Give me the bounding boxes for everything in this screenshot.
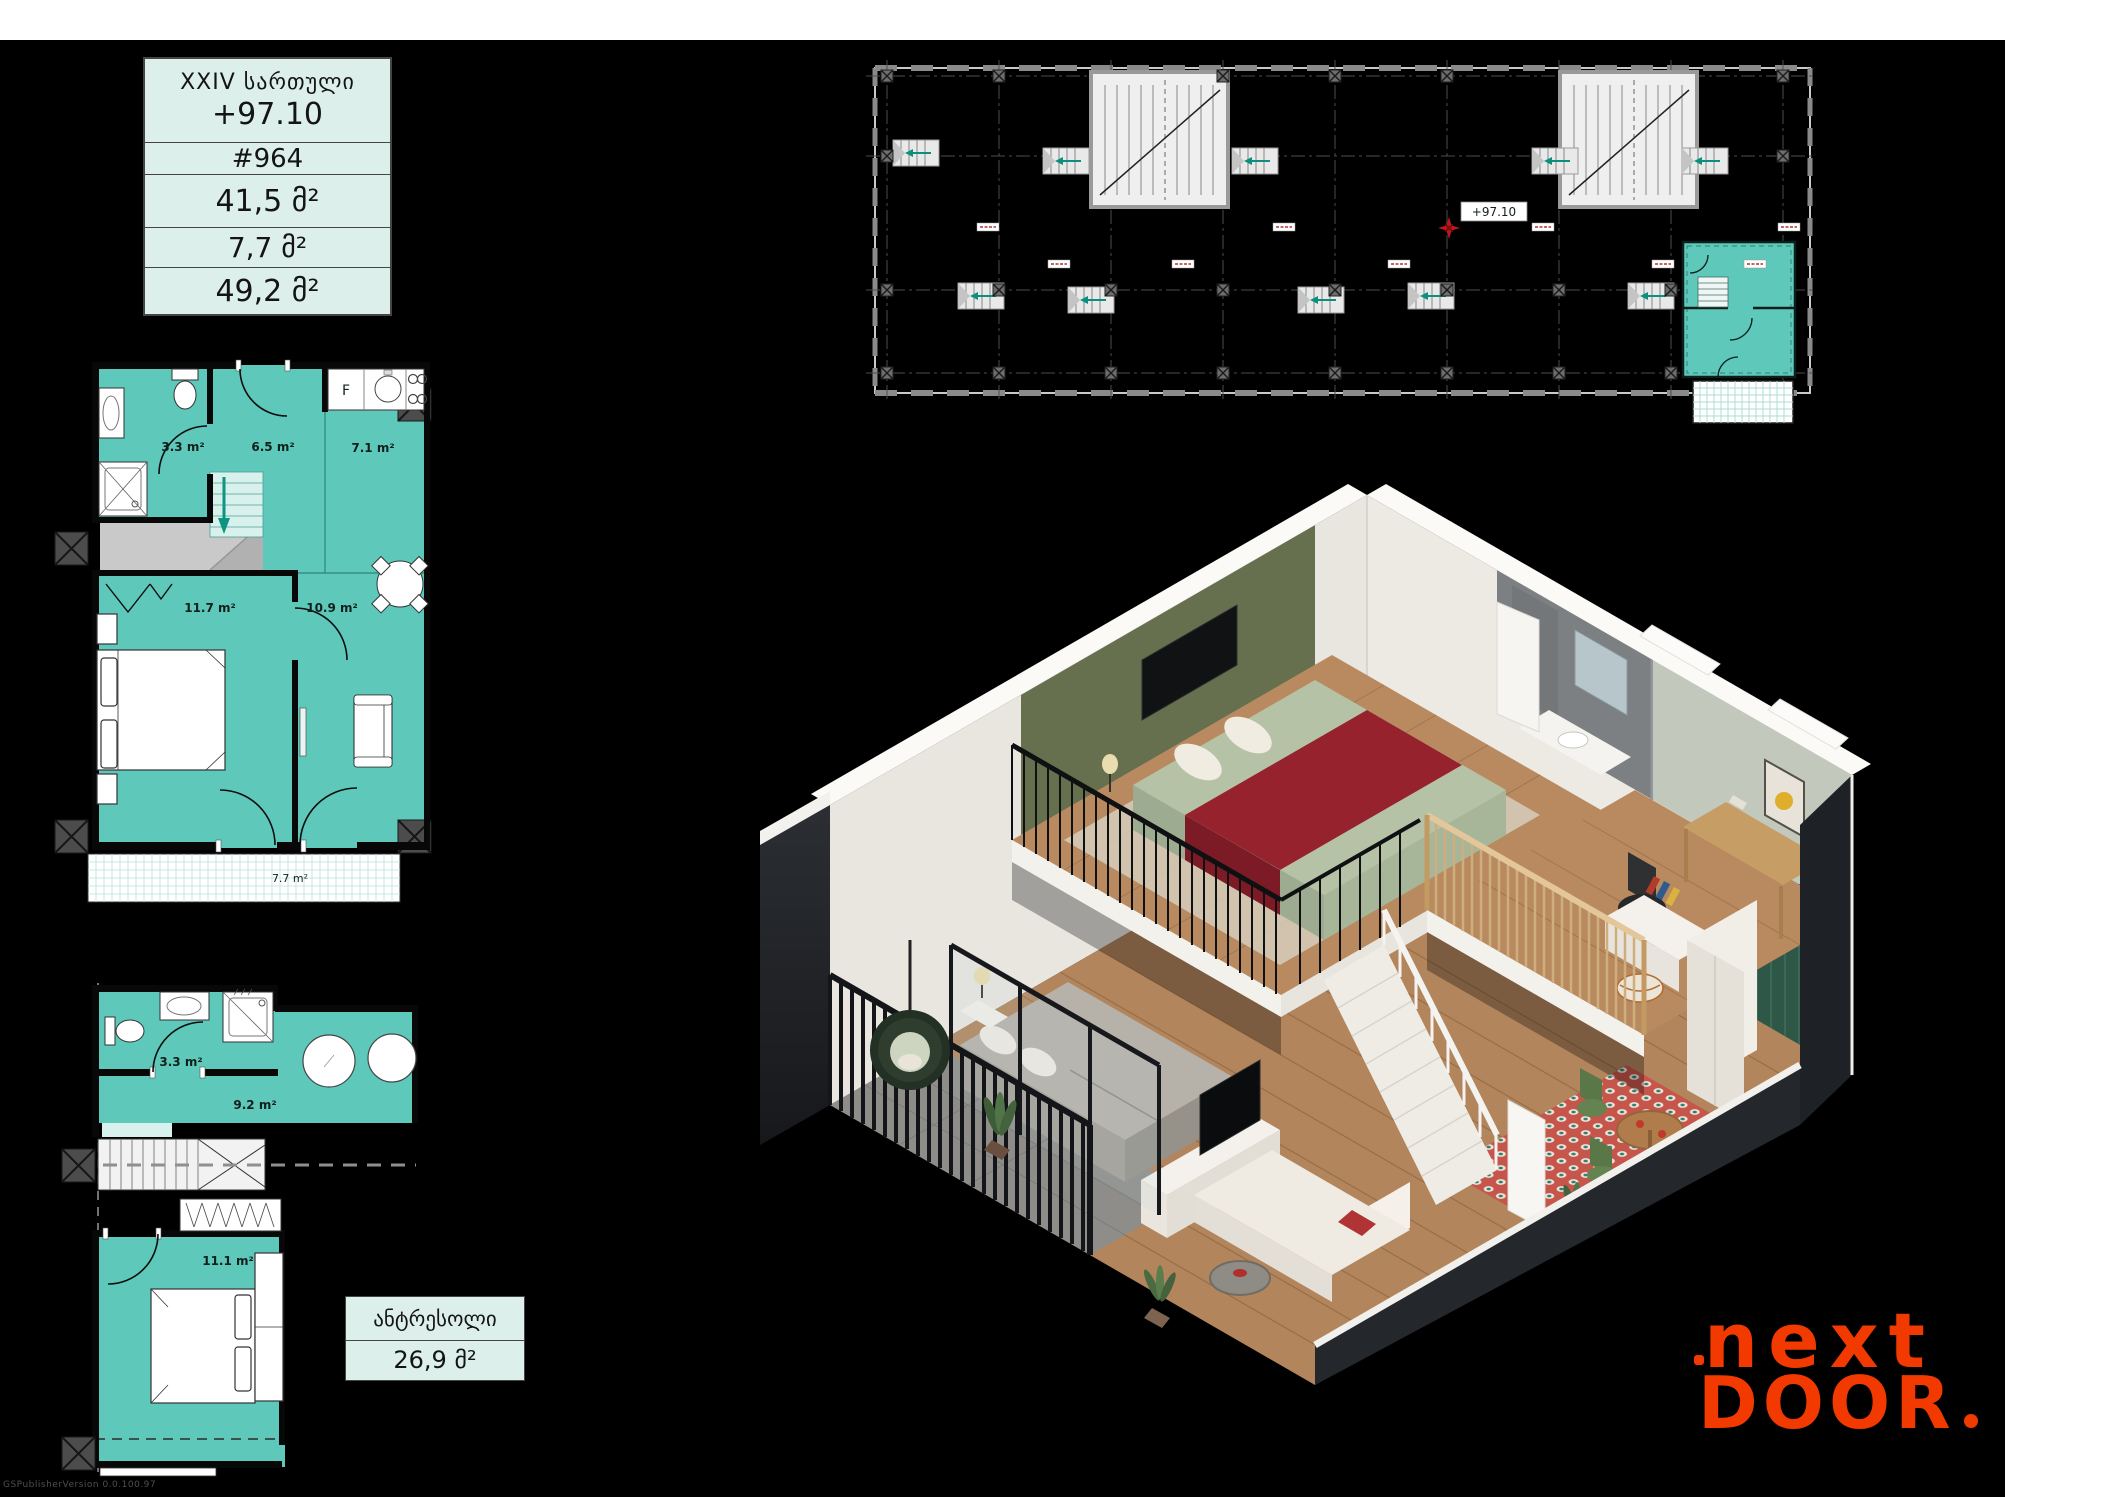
room-label-bathroom: 3.3 m² <box>161 440 204 454</box>
floor-label: XXIV სართული <box>145 70 390 95</box>
room-label-living: 10.9 m² <box>306 601 358 615</box>
pouf <box>368 1034 416 1082</box>
sheet-background: XXIV სართული +97.10 #964 41,5 მ² 7,7 მ² … <box>0 40 2005 1497</box>
mezzanine-label-box: ანტრესოლი 26,9 მ² <box>345 1296 525 1381</box>
mezzanine-floor-plan: 3.3 m² 9.2 m² 11.1 m² <box>48 975 448 1497</box>
upper-floor-plan: F 3.3 m² 6 <box>48 262 443 912</box>
stairs <box>98 1139 416 1190</box>
highlighted-unit <box>1683 242 1795 423</box>
room-label-bedroom: 11.7 m² <box>184 601 236 615</box>
left-exterior-wall <box>760 805 830 1145</box>
info-row-number: #964 <box>145 142 390 174</box>
watermark-text: GSPublisherVersion 0.0.100.97 <box>3 1480 156 1490</box>
apartment-3d-render <box>640 440 1910 1425</box>
room-label-bathroom: 3.3 m² <box>159 1055 202 1069</box>
logo-line2: DOOR <box>1698 1373 2008 1435</box>
level-marker-label: +97.10 <box>1472 205 1516 219</box>
info-row-area-main: 41,5 მ² <box>145 174 390 227</box>
floor-elevation: +97.10 <box>145 97 390 132</box>
room-label-hall: 6.5 m² <box>251 440 294 454</box>
unit-number: #964 <box>145 144 390 174</box>
room-label-balcony: 7.7 m² <box>272 872 308 885</box>
right-exterior-wall <box>1800 775 1852 1125</box>
info-row-area-balcony: 7,7 მ² <box>145 227 390 267</box>
mezzanine-title: ანტრესოლი <box>346 1297 524 1341</box>
room-label-kitchen: 7.1 m² <box>351 441 394 455</box>
room-label-hall: 9.2 m² <box>233 1098 276 1112</box>
balcony <box>88 854 400 902</box>
building-key-plan: +97.10 <box>860 55 1820 445</box>
nextdoor-logo: next DOOR <box>1698 1308 2008 1435</box>
fridge-label: F <box>342 383 350 399</box>
wardrobe <box>180 1199 281 1231</box>
logo-dot-icon <box>1964 1414 1978 1428</box>
room-label-bedroom: 11.1 m² <box>202 1254 254 1268</box>
stair-core <box>1091 72 1228 207</box>
area-main: 41,5 მ² <box>145 184 390 219</box>
stair-core <box>1560 72 1697 207</box>
area-balcony: 7,7 მ² <box>145 231 390 264</box>
mezzanine-area: 26,9 მ² <box>346 1341 524 1380</box>
level-marker <box>1438 217 1460 239</box>
info-row-floor: XXIV სართული +97.10 <box>145 59 390 142</box>
